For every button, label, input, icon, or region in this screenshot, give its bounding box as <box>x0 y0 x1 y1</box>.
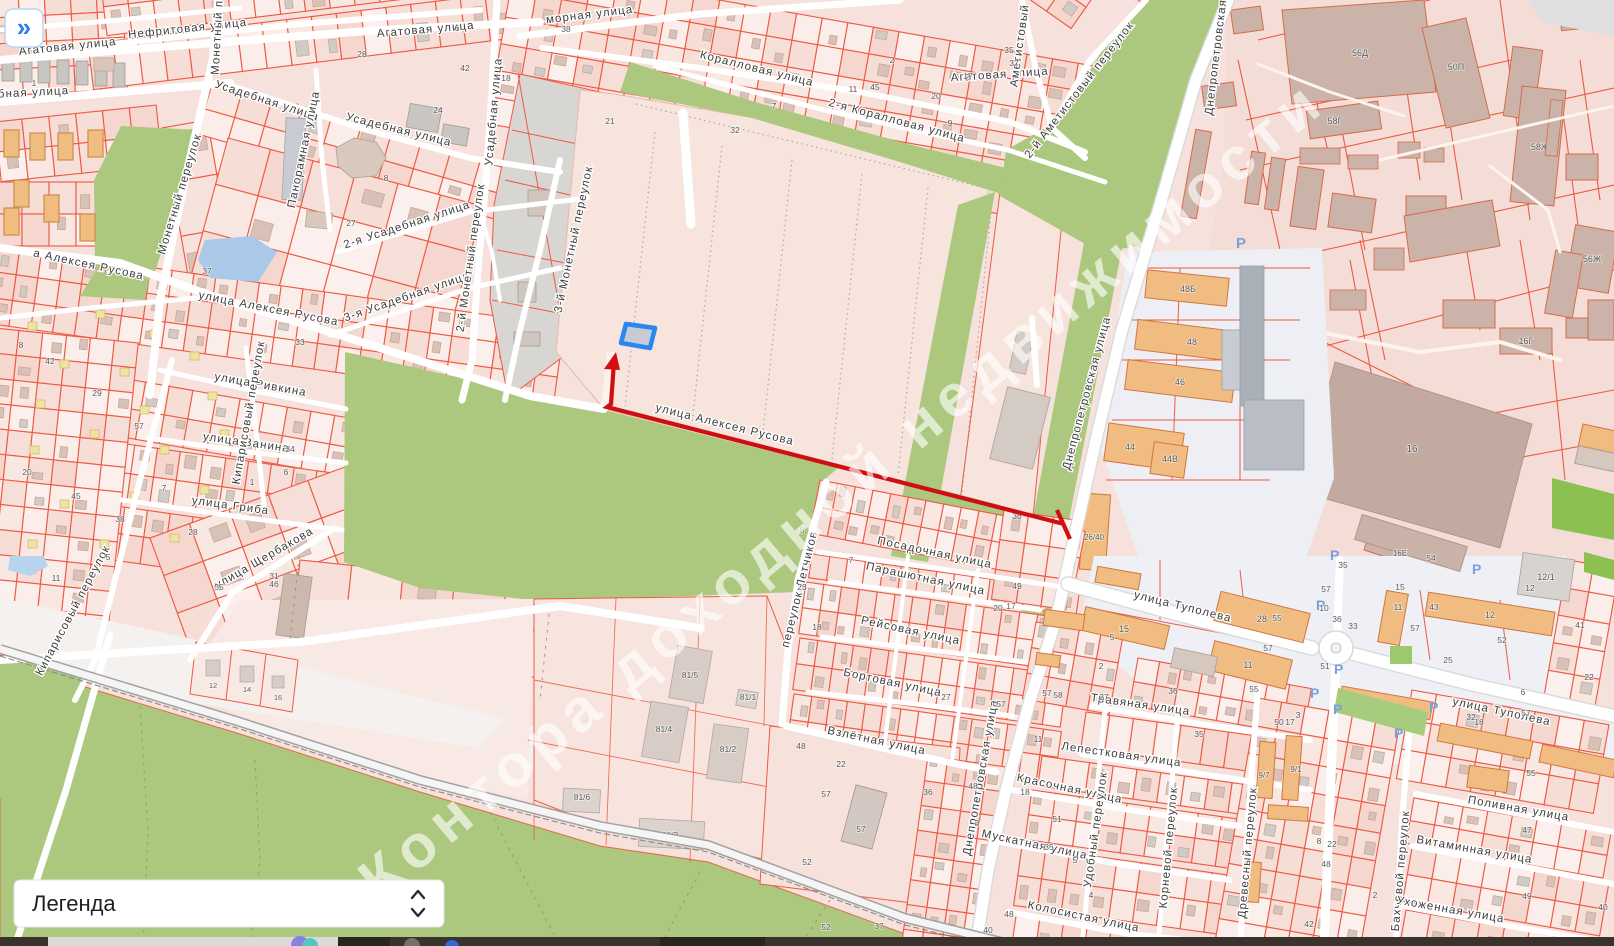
svg-text:10: 10 <box>1319 603 1329 613</box>
svg-text:55: 55 <box>1526 768 1536 778</box>
svg-text:42: 42 <box>45 356 55 366</box>
svg-text:49: 49 <box>1522 891 1532 901</box>
svg-text:7: 7 <box>849 555 854 565</box>
svg-text:16: 16 <box>1406 444 1418 455</box>
svg-text:81/2: 81/2 <box>720 744 737 754</box>
svg-text:24: 24 <box>433 105 443 115</box>
svg-text:18: 18 <box>1020 787 1030 797</box>
svg-text:14: 14 <box>243 685 251 694</box>
svg-text:32: 32 <box>730 125 740 135</box>
svg-text:52: 52 <box>1497 635 1507 645</box>
svg-text:P: P <box>1333 701 1342 717</box>
svg-text:5: 5 <box>1110 632 1115 642</box>
svg-text:55: 55 <box>214 582 224 592</box>
svg-text:45: 45 <box>870 82 880 92</box>
svg-text:33: 33 <box>1348 621 1358 631</box>
svg-text:57: 57 <box>1042 688 1052 698</box>
svg-text:52: 52 <box>821 922 831 932</box>
svg-text:36: 36 <box>1332 614 1342 624</box>
svg-text:P: P <box>1334 661 1343 677</box>
svg-text:48: 48 <box>1004 909 1014 919</box>
svg-text:48: 48 <box>796 741 806 751</box>
svg-text:3: 3 <box>1296 710 1301 720</box>
svg-text:17: 17 <box>1285 717 1295 727</box>
svg-text:26/40: 26/40 <box>1084 533 1105 542</box>
svg-text:7: 7 <box>772 101 777 111</box>
svg-text:56Ж: 56Ж <box>1583 254 1602 264</box>
svg-text:36: 36 <box>1168 686 1178 696</box>
svg-text:12: 12 <box>209 681 217 690</box>
svg-text:57: 57 <box>821 789 831 799</box>
svg-text:49: 49 <box>1012 581 1022 591</box>
svg-text:37: 37 <box>1009 58 1019 68</box>
svg-text:8: 8 <box>1317 836 1322 846</box>
svg-text:37: 37 <box>202 266 212 276</box>
svg-text:2: 2 <box>1373 890 1378 900</box>
svg-text:6: 6 <box>284 467 289 477</box>
svg-text:16: 16 <box>274 693 282 702</box>
svg-text:11: 11 <box>52 573 61 583</box>
svg-text:7: 7 <box>162 483 167 493</box>
svg-text:6: 6 <box>1521 687 1526 697</box>
svg-text:35: 35 <box>1194 729 1204 739</box>
svg-text:42: 42 <box>460 63 470 73</box>
svg-text:17: 17 <box>1006 601 1016 611</box>
svg-text:20: 20 <box>931 91 941 101</box>
svg-text:11: 11 <box>1034 734 1043 744</box>
svg-text:22: 22 <box>1584 672 1594 682</box>
svg-text:55: 55 <box>1272 613 1282 623</box>
svg-text:20: 20 <box>993 603 1003 613</box>
svg-text:48: 48 <box>1321 859 1331 869</box>
svg-text:21: 21 <box>605 116 615 126</box>
svg-text:»: » <box>17 12 31 42</box>
svg-text:11: 11 <box>1243 660 1252 670</box>
svg-text:40: 40 <box>1598 902 1608 912</box>
svg-text:3: 3 <box>975 818 980 828</box>
svg-text:42: 42 <box>1304 919 1314 929</box>
svg-text:20: 20 <box>22 467 32 477</box>
svg-text:35: 35 <box>1338 560 1348 570</box>
svg-text:16Г: 16Г <box>1519 336 1534 346</box>
svg-text:81/4: 81/4 <box>656 724 673 734</box>
svg-text:23: 23 <box>797 582 807 592</box>
svg-text:2: 2 <box>890 55 895 65</box>
svg-text:56Д: 56Д <box>1352 48 1368 58</box>
svg-text:5: 5 <box>1073 855 1078 865</box>
svg-text:81/5: 81/5 <box>682 670 699 680</box>
svg-text:58: 58 <box>1053 690 1063 700</box>
svg-text:11: 11 <box>849 84 858 94</box>
svg-text:37: 37 <box>874 921 884 931</box>
svg-text:33: 33 <box>295 337 305 347</box>
svg-text:57: 57 <box>996 699 1006 709</box>
svg-text:44В: 44В <box>1162 454 1178 464</box>
svg-text:44: 44 <box>1125 442 1135 452</box>
svg-text:57: 57 <box>1410 623 1420 633</box>
svg-text:P: P <box>1394 725 1403 741</box>
svg-text:27: 27 <box>346 218 356 228</box>
svg-text:45: 45 <box>71 491 81 501</box>
svg-text:51: 51 <box>1320 661 1330 671</box>
svg-text:1: 1 <box>32 78 37 88</box>
svg-text:15: 15 <box>1119 624 1129 634</box>
svg-text:38: 38 <box>561 24 571 34</box>
svg-text:28: 28 <box>188 527 198 537</box>
svg-text:46: 46 <box>1175 377 1185 387</box>
svg-text:50: 50 <box>1274 717 1284 727</box>
svg-text:57: 57 <box>1263 643 1273 653</box>
svg-text:57: 57 <box>134 421 144 431</box>
svg-text:12: 12 <box>1485 610 1495 620</box>
svg-text:18: 18 <box>812 622 822 632</box>
svg-text:35: 35 <box>1004 45 1014 55</box>
svg-text:P: P <box>1429 699 1438 715</box>
svg-text:32: 32 <box>1466 712 1476 722</box>
svg-text:9/7: 9/7 <box>1258 771 1270 780</box>
svg-text:11: 11 <box>1394 602 1403 612</box>
svg-text:8: 8 <box>19 340 24 350</box>
svg-text:41: 41 <box>1575 620 1585 630</box>
svg-text:29: 29 <box>92 388 102 398</box>
svg-text:52: 52 <box>802 857 812 867</box>
svg-text:22: 22 <box>1327 839 1337 849</box>
svg-text:22: 22 <box>836 759 846 769</box>
svg-text:P: P <box>1236 235 1246 252</box>
svg-text:17: 17 <box>963 71 973 81</box>
svg-text:25: 25 <box>1443 655 1453 665</box>
svg-text:5: 5 <box>106 552 111 562</box>
svg-text:6: 6 <box>455 23 460 33</box>
svg-text:8: 8 <box>384 173 389 183</box>
svg-text:18: 18 <box>501 73 511 83</box>
svg-text:12: 12 <box>1525 583 1535 593</box>
svg-text:15: 15 <box>1395 582 1405 592</box>
svg-text:9: 9 <box>948 118 953 128</box>
svg-text:27: 27 <box>1099 692 1109 702</box>
svg-text:28: 28 <box>357 49 367 59</box>
svg-text:54: 54 <box>1426 553 1436 563</box>
svg-text:36: 36 <box>923 787 933 797</box>
svg-text:46: 46 <box>269 579 279 589</box>
svg-text:2: 2 <box>1099 661 1104 671</box>
svg-text:4: 4 <box>1089 890 1094 900</box>
svg-text:27: 27 <box>941 692 951 702</box>
svg-text:9/1: 9/1 <box>1290 765 1302 774</box>
svg-text:48Б: 48Б <box>1180 284 1196 294</box>
svg-text:P: P <box>1310 685 1319 701</box>
svg-text:48: 48 <box>1187 337 1197 347</box>
svg-text:57: 57 <box>1321 584 1331 594</box>
svg-text:1: 1 <box>250 477 255 487</box>
svg-text:51: 51 <box>1052 814 1062 824</box>
svg-text:16Е: 16Е <box>1393 549 1407 558</box>
svg-text:43: 43 <box>1429 602 1439 612</box>
svg-text:34: 34 <box>285 444 295 454</box>
svg-text:57: 57 <box>1521 708 1531 718</box>
svg-text:40: 40 <box>983 925 993 935</box>
svg-text:81/6: 81/6 <box>574 792 591 802</box>
svg-text:12/1: 12/1 <box>1537 572 1555 582</box>
svg-text:38: 38 <box>115 514 125 524</box>
svg-text:35: 35 <box>1044 842 1054 852</box>
svg-text:P: P <box>1472 561 1481 577</box>
svg-text:81/1: 81/1 <box>740 692 757 702</box>
svg-text:28: 28 <box>1257 614 1267 624</box>
svg-text:47: 47 <box>1522 825 1532 835</box>
svg-text:50П: 50П <box>1448 62 1464 72</box>
svg-text:57: 57 <box>856 824 866 834</box>
svg-text:Легенда: Легенда <box>32 891 116 916</box>
svg-text:55: 55 <box>1249 684 1259 694</box>
svg-text:48: 48 <box>968 781 978 791</box>
